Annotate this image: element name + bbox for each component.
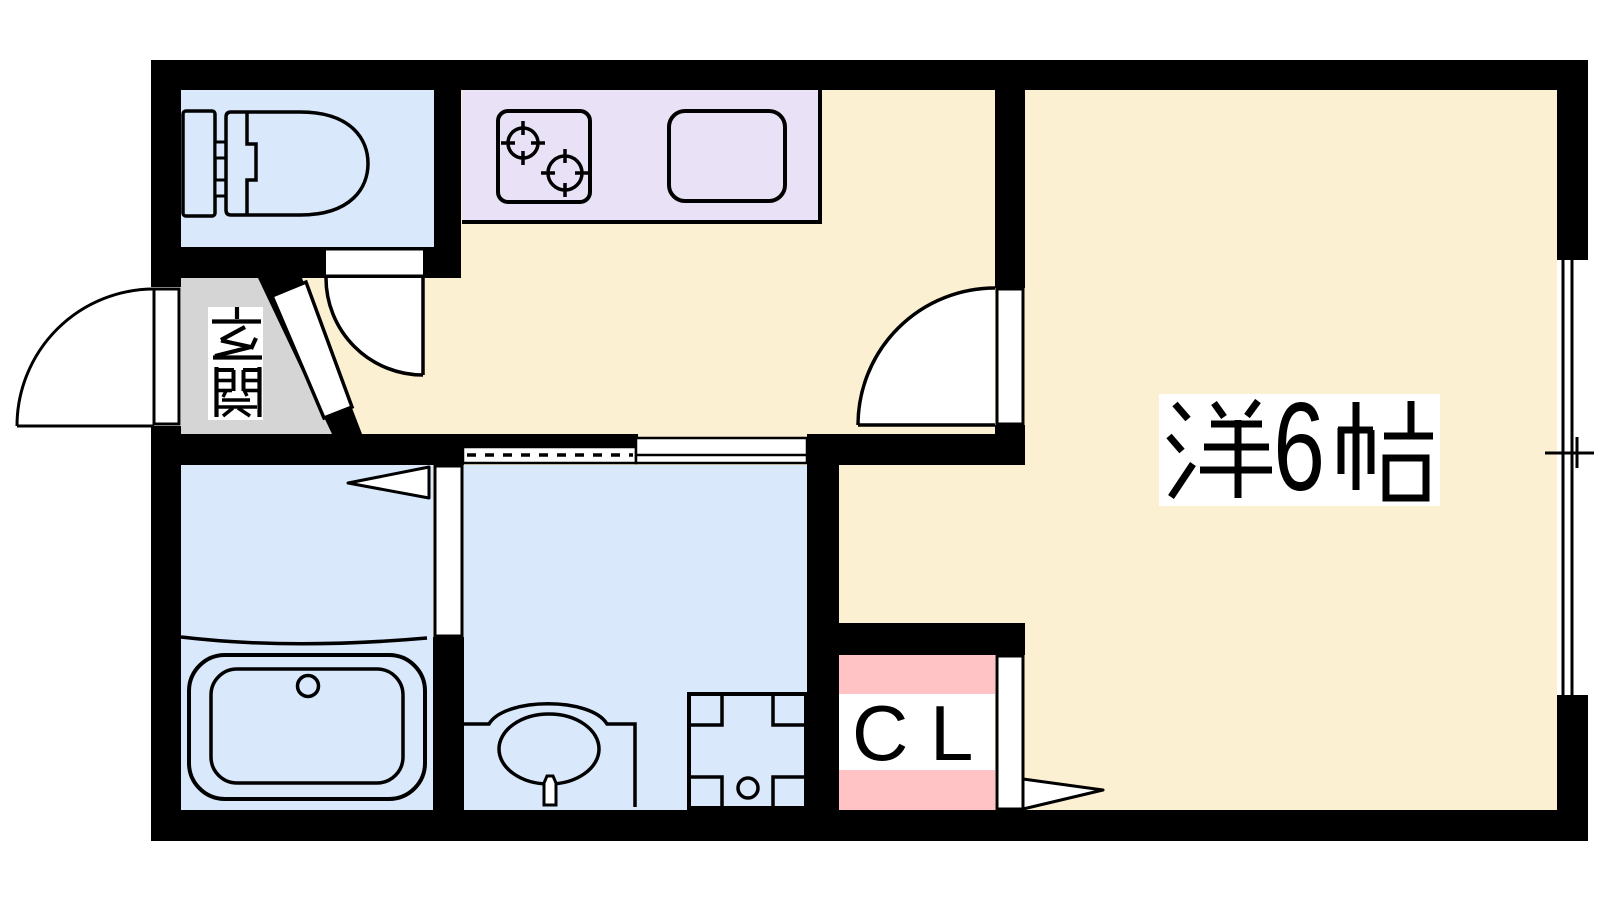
svg-text:C L: C L — [852, 689, 973, 777]
svg-text:6: 6 — [1273, 378, 1325, 517]
